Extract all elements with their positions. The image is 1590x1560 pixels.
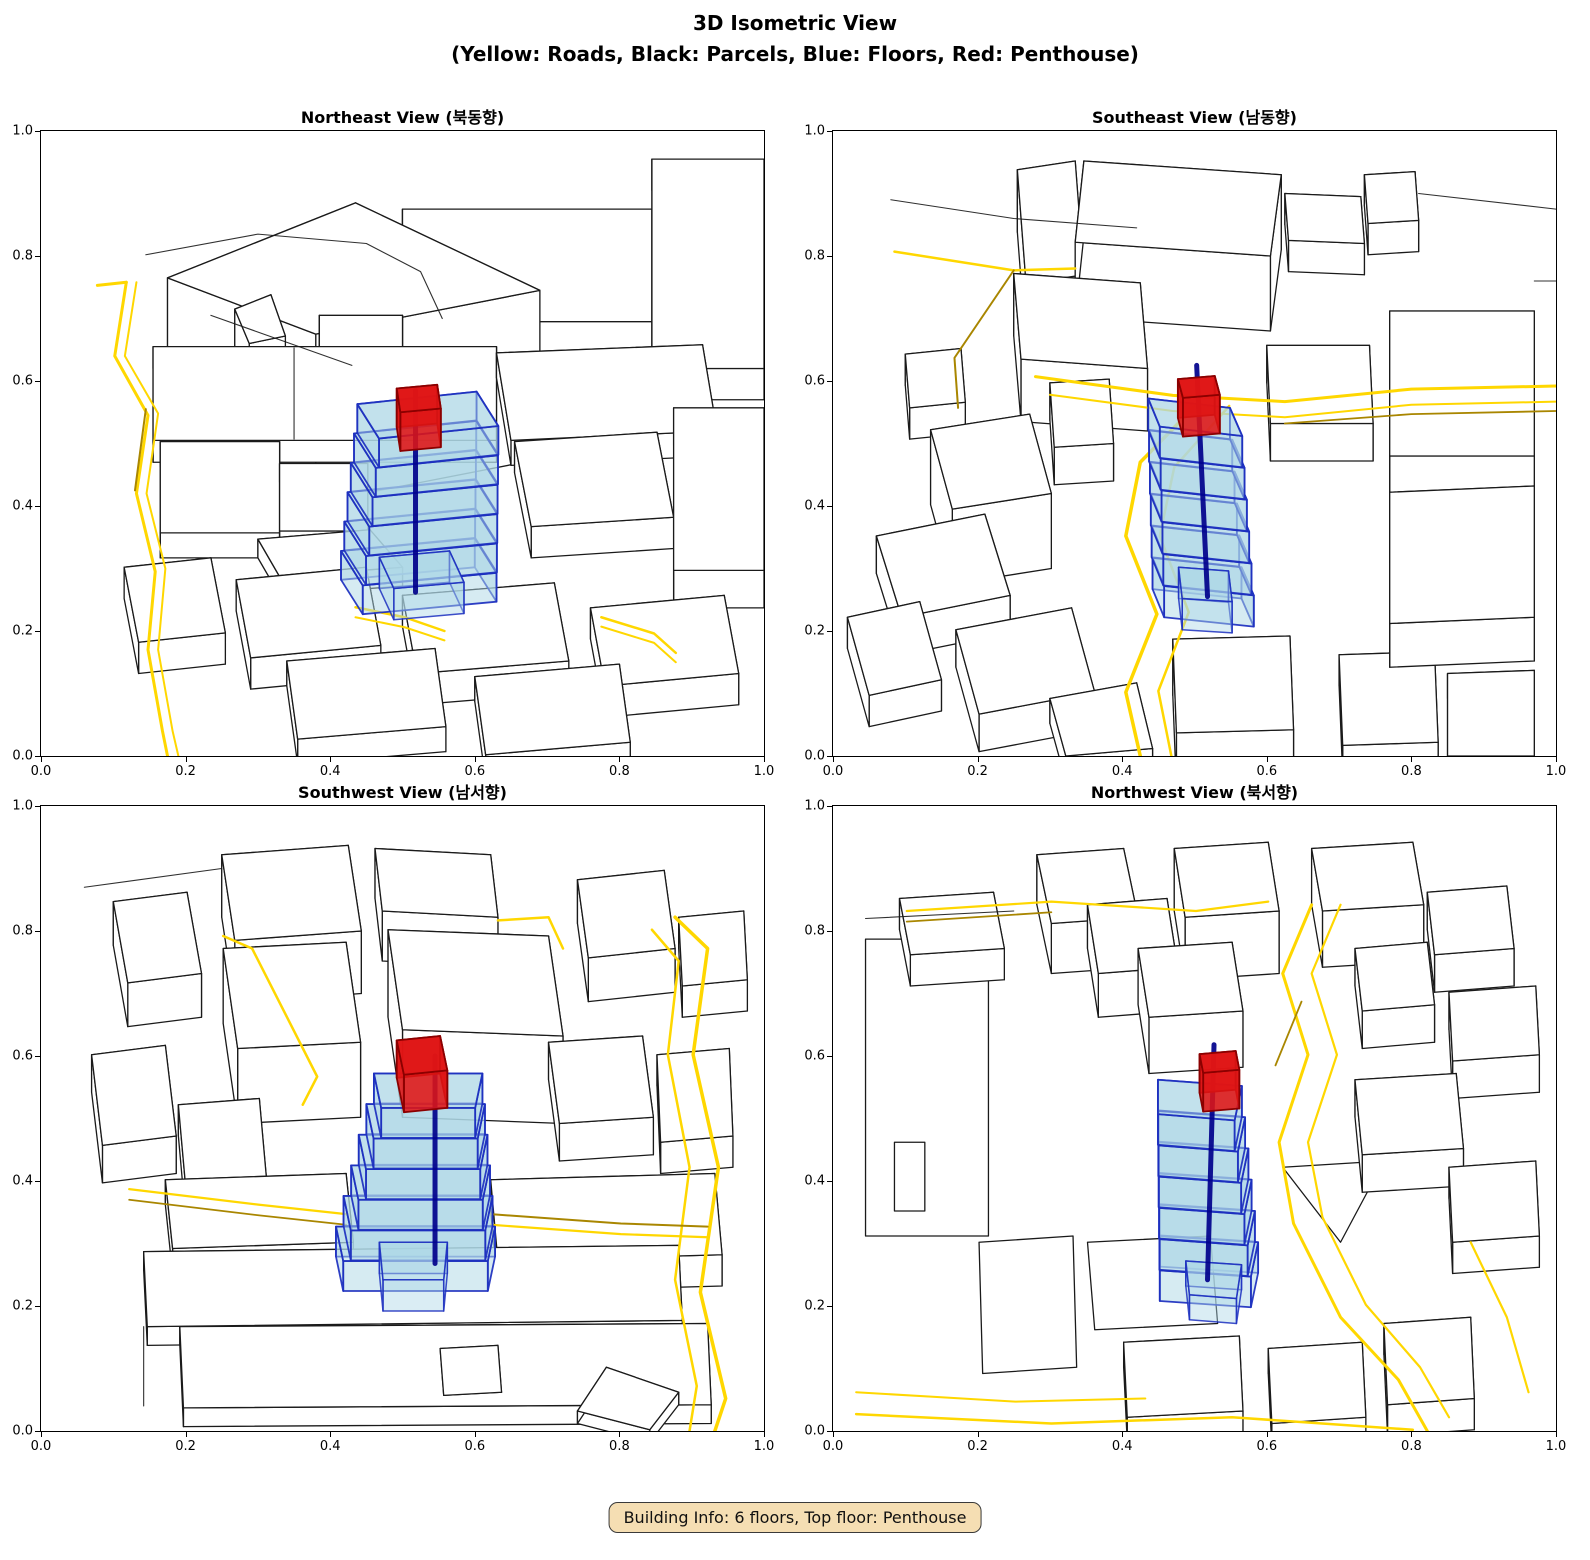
y-tick-label: 0.4 bbox=[0, 499, 33, 514]
y-tick-mark bbox=[35, 1056, 40, 1057]
y-tick-mark bbox=[35, 1431, 40, 1432]
y-tick-mark bbox=[827, 131, 832, 132]
x-tick-mark bbox=[1122, 1432, 1123, 1437]
subplot-northeast-view: Northeast View (북동향) 0.00.00.20.20.40.40… bbox=[40, 130, 765, 757]
x-tick-mark bbox=[186, 1432, 187, 1437]
y-tick-label: 0.6 bbox=[783, 374, 825, 389]
y-tick-label: 0.4 bbox=[0, 1174, 33, 1189]
x-tick-mark bbox=[1267, 1432, 1268, 1437]
plot-canvas-southeast bbox=[833, 131, 1556, 756]
x-tick-mark bbox=[978, 757, 979, 762]
x-tick-label: 1.0 bbox=[1546, 1439, 1567, 1454]
y-tick-mark bbox=[35, 631, 40, 632]
x-tick-label: 0.8 bbox=[609, 764, 630, 779]
y-tick-mark bbox=[35, 256, 40, 257]
y-tick-mark bbox=[827, 506, 832, 507]
x-tick-label: 0.4 bbox=[320, 764, 341, 779]
x-tick-label: 0.8 bbox=[1401, 1439, 1422, 1454]
y-tick-label: 0.2 bbox=[783, 624, 825, 639]
x-tick-label: 0.4 bbox=[320, 1439, 341, 1454]
y-tick-label: 0.6 bbox=[0, 1049, 33, 1064]
x-tick-mark bbox=[1267, 757, 1268, 762]
y-tick-label: 1.0 bbox=[0, 799, 33, 814]
x-tick-mark bbox=[186, 757, 187, 762]
x-tick-label: 0.2 bbox=[967, 764, 988, 779]
x-tick-mark bbox=[833, 757, 834, 762]
y-tick-label: 1.0 bbox=[783, 124, 825, 139]
x-tick-label: 0.6 bbox=[464, 1439, 485, 1454]
x-tick-label: 0.2 bbox=[175, 1439, 196, 1454]
x-tick-label: 0.6 bbox=[464, 764, 485, 779]
subplot-title-northwest: Northwest View (북서향) bbox=[833, 779, 1556, 803]
x-tick-label: 0.0 bbox=[31, 1439, 52, 1454]
y-tick-label: 0.0 bbox=[783, 1424, 825, 1439]
x-tick-mark bbox=[1556, 757, 1557, 762]
y-tick-label: 0.4 bbox=[783, 1174, 825, 1189]
y-tick-mark bbox=[827, 1181, 832, 1182]
y-tick-mark bbox=[35, 806, 40, 807]
y-tick-label: 0.6 bbox=[0, 374, 33, 389]
plot-canvas-northwest bbox=[833, 806, 1556, 1431]
y-tick-mark bbox=[827, 756, 832, 757]
y-tick-label: 0.6 bbox=[783, 1049, 825, 1064]
y-tick-mark bbox=[827, 1306, 832, 1307]
y-tick-mark bbox=[35, 506, 40, 507]
x-tick-mark bbox=[1122, 757, 1123, 762]
y-tick-mark bbox=[827, 631, 832, 632]
x-tick-mark bbox=[833, 1432, 834, 1437]
x-tick-mark bbox=[330, 1432, 331, 1437]
x-tick-mark bbox=[764, 757, 765, 762]
subplot-title-southwest: Southwest View (남서향) bbox=[41, 779, 764, 803]
x-tick-mark bbox=[619, 757, 620, 762]
x-tick-label: 0.2 bbox=[967, 1439, 988, 1454]
plot-canvas-northeast bbox=[41, 131, 764, 756]
y-tick-mark bbox=[827, 1431, 832, 1432]
x-tick-label: 0.0 bbox=[823, 764, 844, 779]
x-tick-mark bbox=[764, 1432, 765, 1437]
figure: 3D Isometric View (Yellow: Roads, Black:… bbox=[0, 0, 1590, 1560]
y-tick-label: 0.8 bbox=[0, 924, 33, 939]
x-tick-mark bbox=[1411, 757, 1412, 762]
y-tick-label: 0.2 bbox=[783, 1299, 825, 1314]
x-tick-label: 0.0 bbox=[31, 764, 52, 779]
x-tick-mark bbox=[1556, 1432, 1557, 1437]
x-tick-mark bbox=[475, 757, 476, 762]
y-tick-label: 0.8 bbox=[783, 249, 825, 264]
x-tick-label: 0.8 bbox=[609, 1439, 630, 1454]
y-tick-label: 0.8 bbox=[783, 924, 825, 939]
x-tick-label: 0.6 bbox=[1256, 764, 1277, 779]
y-tick-mark bbox=[827, 256, 832, 257]
y-tick-mark bbox=[827, 806, 832, 807]
y-tick-label: 1.0 bbox=[783, 799, 825, 814]
x-tick-label: 0.6 bbox=[1256, 1439, 1277, 1454]
y-tick-mark bbox=[827, 931, 832, 932]
y-tick-mark bbox=[35, 931, 40, 932]
y-tick-label: 0.0 bbox=[0, 1424, 33, 1439]
figure-title: 3D Isometric View (Yellow: Roads, Black:… bbox=[0, 8, 1590, 70]
y-tick-label: 0.8 bbox=[0, 249, 33, 264]
x-tick-mark bbox=[978, 1432, 979, 1437]
y-tick-label: 0.0 bbox=[783, 749, 825, 764]
y-tick-label: 0.0 bbox=[0, 749, 33, 764]
y-tick-mark bbox=[35, 381, 40, 382]
x-tick-mark bbox=[1411, 1432, 1412, 1437]
y-tick-mark bbox=[35, 756, 40, 757]
subplot-title-southeast: Southeast View (남동향) bbox=[833, 104, 1556, 128]
figure-title-line1: 3D Isometric View bbox=[0, 8, 1590, 39]
x-tick-mark bbox=[41, 757, 42, 762]
subplot-northwest-view: Northwest View (북서향) 0.00.00.20.20.40.40… bbox=[832, 805, 1557, 1432]
figure-title-line2: (Yellow: Roads, Black: Parcels, Blue: Fl… bbox=[0, 39, 1590, 70]
x-tick-mark bbox=[619, 1432, 620, 1437]
y-tick-mark bbox=[827, 1056, 832, 1057]
building-info-badge: Building Info: 6 floors, Top floor: Pent… bbox=[609, 1502, 982, 1533]
x-tick-mark bbox=[330, 757, 331, 762]
y-tick-label: 0.2 bbox=[0, 624, 33, 639]
x-tick-label: 1.0 bbox=[1546, 764, 1567, 779]
x-tick-label: 0.0 bbox=[823, 1439, 844, 1454]
x-tick-mark bbox=[41, 1432, 42, 1437]
plot-canvas-southwest bbox=[41, 806, 764, 1431]
x-tick-label: 0.4 bbox=[1112, 764, 1133, 779]
x-tick-label: 0.4 bbox=[1112, 1439, 1133, 1454]
y-tick-label: 0.2 bbox=[0, 1299, 33, 1314]
subplot-southeast-view: Southeast View (남동향) 0.00.00.20.20.40.40… bbox=[832, 130, 1557, 757]
y-tick-label: 0.4 bbox=[783, 499, 825, 514]
subplot-title-northeast: Northeast View (북동향) bbox=[41, 104, 764, 128]
y-tick-mark bbox=[35, 1306, 40, 1307]
x-tick-label: 1.0 bbox=[754, 764, 775, 779]
y-tick-mark bbox=[35, 1181, 40, 1182]
y-tick-mark bbox=[827, 381, 832, 382]
x-tick-label: 0.2 bbox=[175, 764, 196, 779]
y-tick-mark bbox=[35, 131, 40, 132]
y-tick-label: 1.0 bbox=[0, 124, 33, 139]
x-tick-mark bbox=[475, 1432, 476, 1437]
x-tick-label: 1.0 bbox=[754, 1439, 775, 1454]
x-tick-label: 0.8 bbox=[1401, 764, 1422, 779]
subplot-southwest-view: Southwest View (남서향) 0.00.00.20.20.40.40… bbox=[40, 805, 765, 1432]
